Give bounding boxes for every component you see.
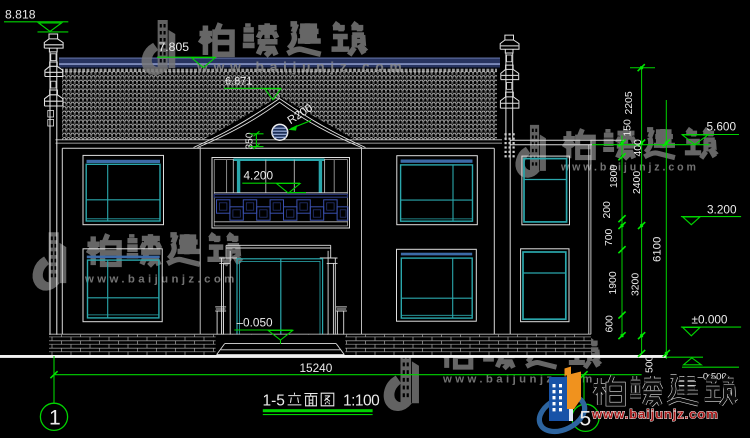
svg-text:150: 150 (623, 119, 634, 137)
svg-text:1900: 1900 (608, 271, 619, 294)
svg-text:600: 600 (605, 315, 616, 333)
svg-text:www.baijunjz.com: www.baijunjz.com (560, 162, 699, 174)
svg-text:6.871: 6.871 (225, 76, 253, 88)
svg-text:400: 400 (633, 139, 644, 157)
svg-text:3200: 3200 (631, 273, 642, 296)
svg-text:1-5: 1-5 (263, 393, 285, 410)
svg-text:2205: 2205 (624, 91, 635, 114)
svg-text:1: 1 (49, 407, 61, 430)
svg-text:500: 500 (645, 355, 656, 373)
svg-text:3.200: 3.200 (707, 203, 737, 217)
svg-text:±0.000: ±0.000 (692, 313, 728, 327)
svg-text:5: 5 (580, 408, 592, 431)
svg-text:7.805: 7.805 (159, 40, 190, 54)
svg-text:–0.050: –0.050 (237, 316, 274, 330)
svg-text:www.baijunjz.com: www.baijunjz.com (196, 59, 407, 75)
svg-text:4.200: 4.200 (244, 169, 274, 183)
svg-text:8.818: 8.818 (5, 8, 36, 22)
svg-text:1800: 1800 (609, 165, 620, 188)
svg-text:6100: 6100 (652, 237, 664, 262)
svg-text:2400: 2400 (632, 171, 643, 194)
svg-text:200: 200 (602, 201, 613, 219)
svg-text:www.baijunjz.com: www.baijunjz.com (84, 274, 238, 286)
svg-text:700: 700 (604, 228, 615, 246)
svg-text:1:100: 1:100 (343, 393, 380, 410)
svg-text:15240: 15240 (300, 361, 333, 375)
svg-text:www.baijunjz.com: www.baijunjz.com (591, 407, 719, 422)
svg-text:5.600: 5.600 (707, 120, 737, 134)
